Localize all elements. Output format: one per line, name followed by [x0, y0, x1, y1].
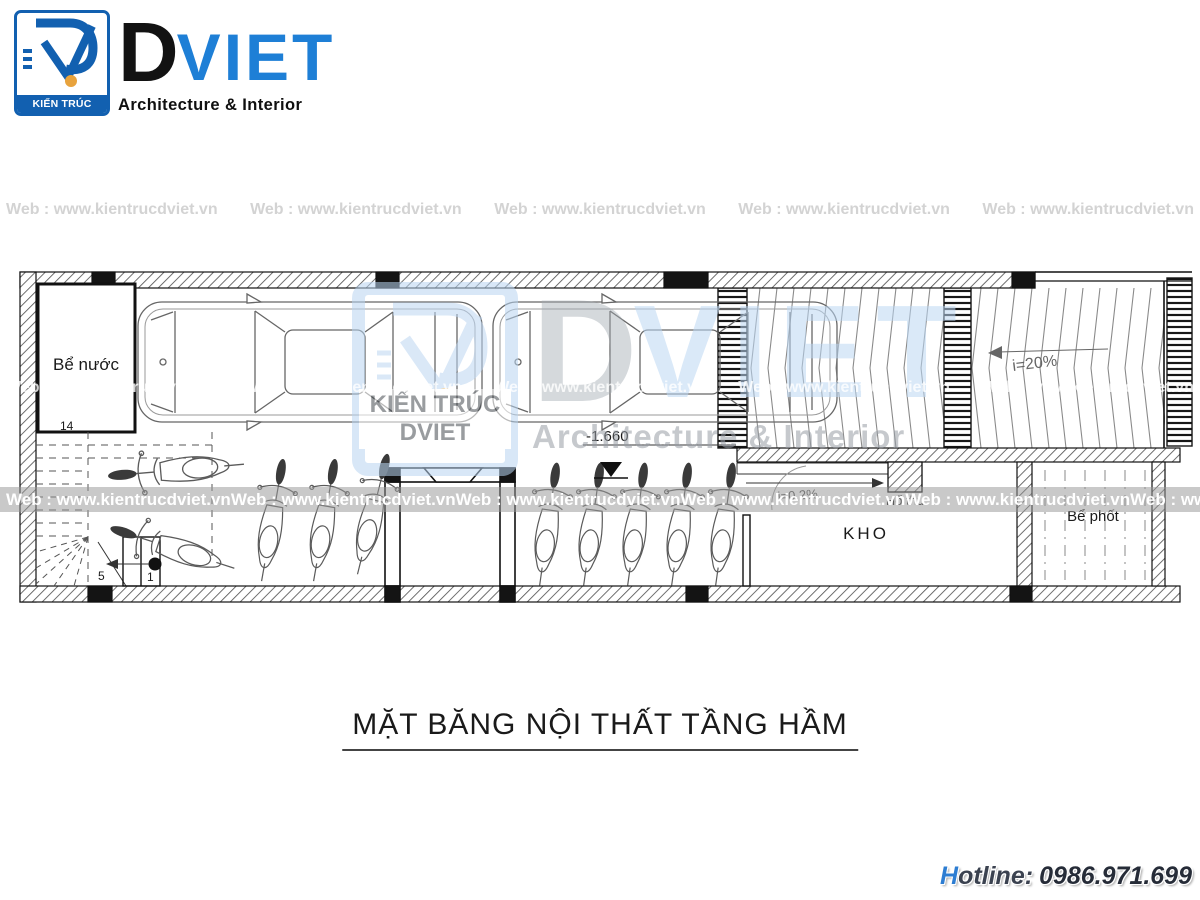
hotline: Hotline:0986.971.699	[940, 862, 1192, 891]
watermark-row-middle: Web : www.kientrucdviet.vnWeb : www.kien…	[0, 378, 1200, 398]
left-wall	[20, 272, 36, 602]
scooters-right	[520, 460, 753, 588]
watermark-square-title: KIẾN TRÚC DVIET	[359, 389, 511, 449]
brand-tagline: Architecture & Interior	[118, 96, 335, 115]
label-dim-14: 14	[60, 419, 74, 433]
watermark-row-top: Web : www.kientrucdviet.vnWeb : www.kien…	[0, 200, 1200, 220]
sheet-title: MẶT BĂNG NỘI THẤT TẦNG HẦM	[342, 708, 858, 751]
septic-left-wall	[1017, 462, 1032, 586]
watermark-brand-viet: VIET	[633, 286, 966, 424]
label-stair-5: 5	[98, 569, 105, 583]
company-logo: KIẾN TRÚC DVIET D VIET Architecture & In…	[14, 10, 335, 116]
watermark-band: Web : www.kientrucdviet.vnWeb : www.kien…	[0, 487, 1200, 512]
hotline-number: 0986.971.699	[1039, 862, 1192, 890]
bottom-wall	[20, 586, 1180, 602]
logo-orange-dot	[65, 75, 77, 87]
ramp-drain-grate-street	[1167, 278, 1192, 446]
logo-square: KIẾN TRÚC DVIET	[14, 10, 110, 116]
stair-start-dot	[149, 558, 162, 571]
septic-right-wall	[1152, 462, 1165, 586]
hotline-label-rest: otline:	[958, 862, 1033, 890]
brand-viet: VIET	[177, 24, 336, 90]
brand-letter-d: D	[118, 10, 177, 94]
hotline-label-h: H	[940, 862, 958, 890]
label-water-tank: Bể nước	[53, 355, 119, 374]
logo-mark	[18, 15, 106, 99]
motorbikes-left	[104, 442, 246, 588]
logo-square-title: KIẾN TRÚC DVIET	[17, 95, 107, 113]
storage-room	[743, 515, 750, 586]
label-storage: KHO	[843, 524, 889, 543]
label-stair-1: 1	[147, 570, 154, 584]
watermark-brand-d: D	[532, 278, 633, 424]
